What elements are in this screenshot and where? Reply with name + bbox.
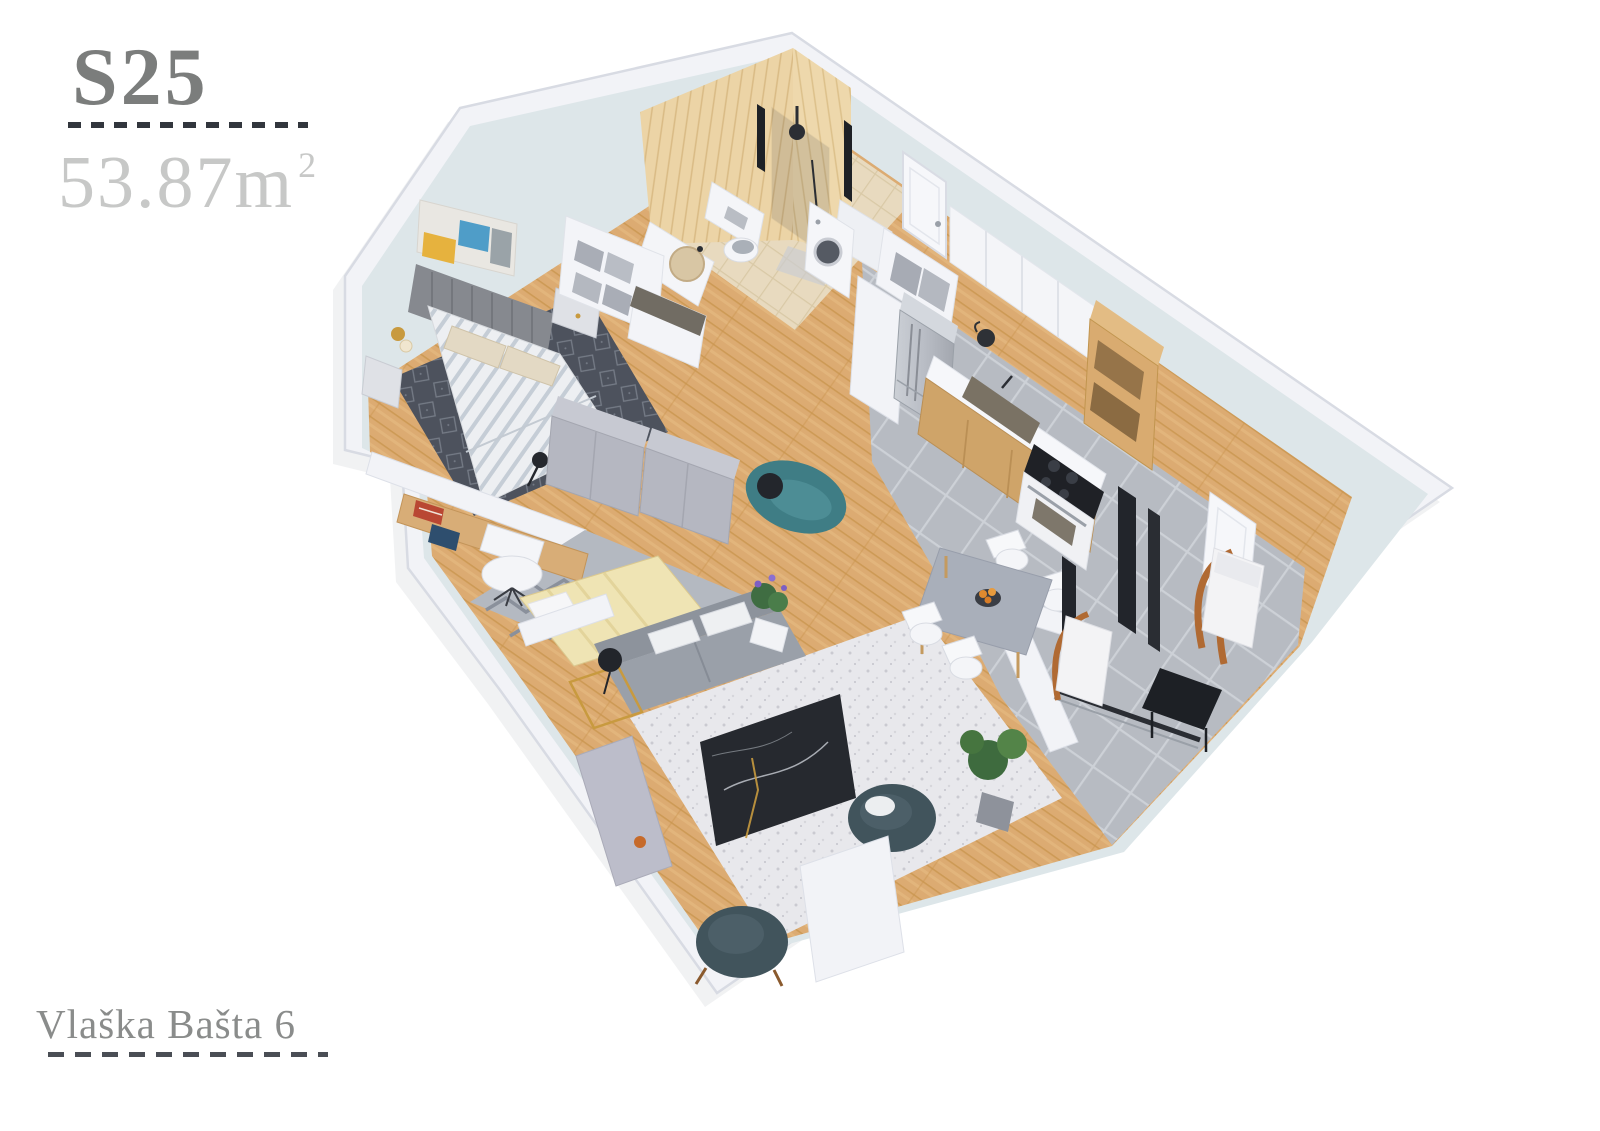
armchair-right xyxy=(848,784,936,852)
burner xyxy=(1066,472,1078,484)
office-chair-seat xyxy=(482,556,542,592)
sconce-globe-icon xyxy=(400,340,412,352)
toilet-seat xyxy=(732,240,754,254)
plant-leaves xyxy=(960,730,984,754)
sliding-door-frame xyxy=(1148,508,1160,652)
settee-cushion xyxy=(757,473,783,499)
sliding-door-frame xyxy=(1118,486,1136,634)
towel-rail-strip-2 xyxy=(844,120,852,202)
shower-head xyxy=(789,124,805,140)
kettle-icon xyxy=(977,329,995,347)
sconce-arm-icon xyxy=(391,327,405,341)
armchair-leg xyxy=(774,970,782,986)
violet-flower xyxy=(755,581,762,588)
chair-seat xyxy=(950,657,982,679)
nightstand-knob xyxy=(576,314,581,319)
wall-art-grey xyxy=(490,228,512,268)
chair-cushion xyxy=(1056,616,1112,706)
orange-fruit xyxy=(985,597,992,604)
plant-leaves xyxy=(997,729,1027,759)
violet-flower xyxy=(781,585,787,591)
washer-knob xyxy=(816,220,821,225)
page: S25 53.87m2 Vlaška Bašta 6 xyxy=(0,0,1600,1131)
burner xyxy=(1048,460,1060,472)
orange-fruit xyxy=(979,590,987,598)
towel-rail-strip xyxy=(757,104,765,172)
plant-leaves xyxy=(768,592,788,612)
armchair-pillow xyxy=(865,796,895,816)
basin-tap xyxy=(697,246,703,252)
table-lamp-icon xyxy=(598,648,622,672)
orange-fruit xyxy=(988,588,996,596)
decor-item xyxy=(634,836,646,848)
washer-door xyxy=(815,239,841,265)
door-handle xyxy=(935,221,941,227)
violet-flower xyxy=(769,575,776,582)
desk-lamp-icon xyxy=(532,452,548,468)
floor-plan xyxy=(0,0,1600,1131)
chair-seat xyxy=(910,623,942,645)
armchair-seat xyxy=(708,914,764,954)
